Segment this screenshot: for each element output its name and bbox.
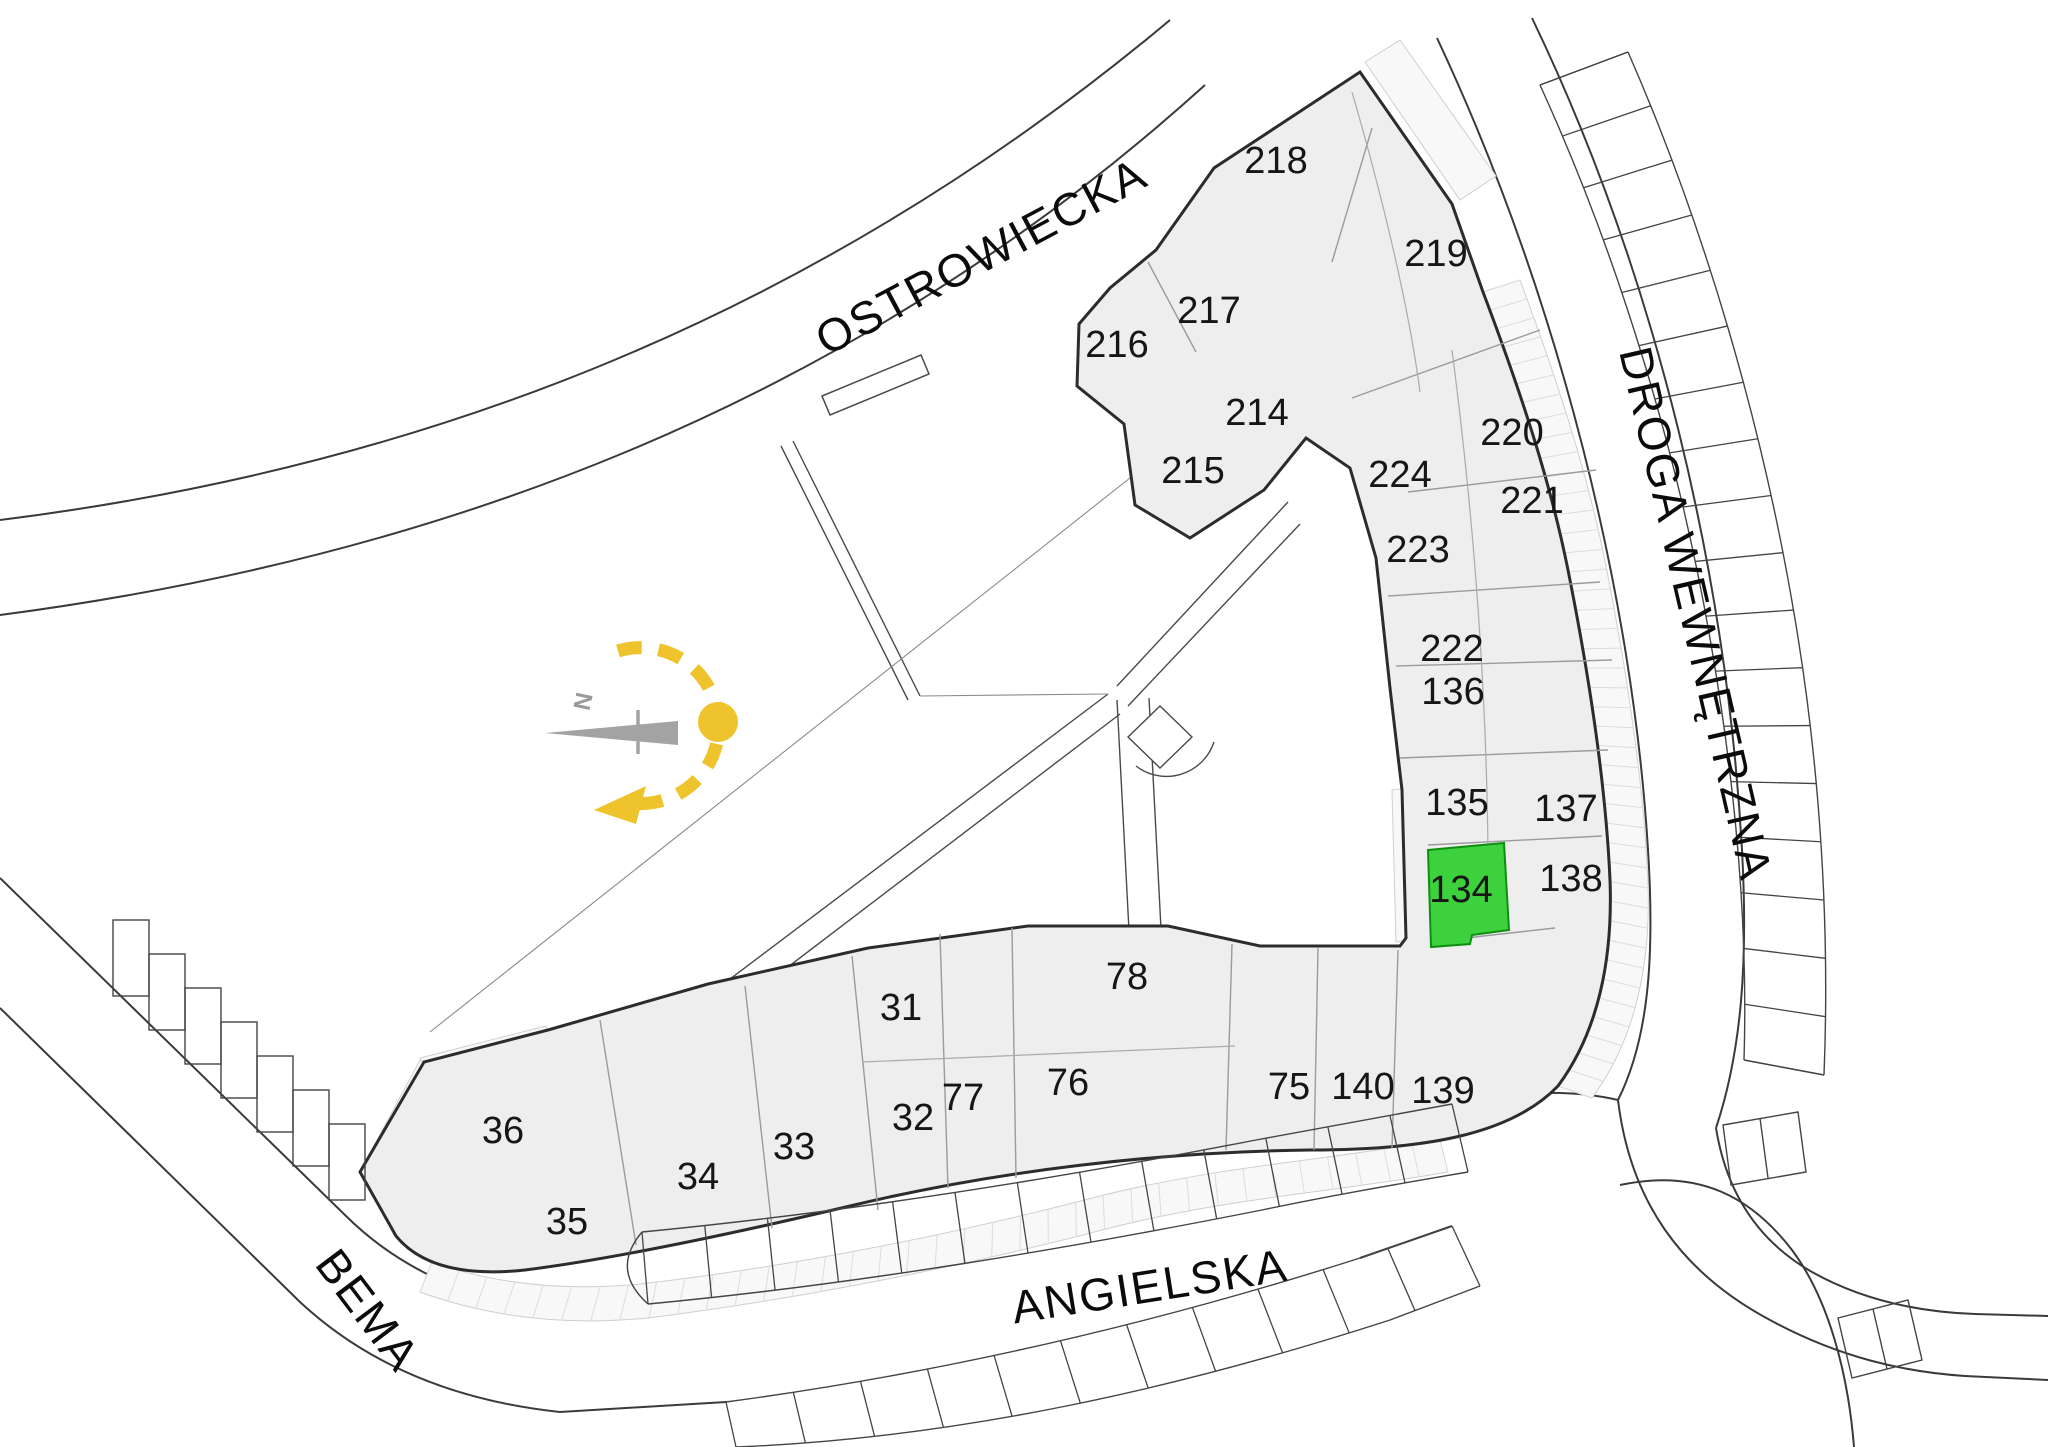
parking-stall <box>221 1022 257 1098</box>
unit-label-219[interactable]: 219 <box>1404 233 1467 275</box>
unit-label-218[interactable]: 218 <box>1244 140 1307 182</box>
unit-label-222[interactable]: 222 <box>1420 628 1483 670</box>
parking-stall <box>257 1056 293 1132</box>
unit-label-224[interactable]: 224 <box>1368 454 1431 496</box>
unit-label-221[interactable]: 221 <box>1500 480 1563 522</box>
site-plan: N OSTROWIECKA DROGA WEWNĘTRZNA ANGIELSKA… <box>0 0 2048 1447</box>
unit-label-134[interactable]: 134 <box>1429 869 1492 911</box>
unit-label-136[interactable]: 136 <box>1421 671 1484 713</box>
street-label-bema: BEMA <box>306 1239 431 1381</box>
street-bay <box>822 355 929 415</box>
unit-label-138[interactable]: 138 <box>1539 858 1602 900</box>
unit-label-215[interactable]: 215 <box>1161 450 1224 492</box>
street-ostrowiecka <box>0 20 1205 615</box>
road-corner-junction <box>1618 1100 2048 1447</box>
unit-label-75[interactable]: 75 <box>1268 1066 1310 1108</box>
unit-label-33[interactable]: 33 <box>773 1126 815 1168</box>
compass-dot <box>698 702 738 742</box>
unit-label-216[interactable]: 216 <box>1085 324 1148 366</box>
unit-label-31[interactable]: 31 <box>880 987 922 1029</box>
unit-label-139[interactable]: 139 <box>1411 1070 1474 1112</box>
north-arrow-icon <box>545 721 678 745</box>
parking-bema-row <box>113 920 365 1200</box>
compass-arc-arrowhead <box>594 786 646 824</box>
parking-stall <box>329 1124 365 1200</box>
unit-label-137[interactable]: 137 <box>1534 788 1597 830</box>
planter-diamond <box>1128 706 1192 768</box>
unit-label-34[interactable]: 34 <box>677 1156 719 1198</box>
unit-label-217[interactable]: 217 <box>1177 290 1240 332</box>
unit-label-214[interactable]: 214 <box>1225 392 1288 434</box>
unit-label-78[interactable]: 78 <box>1106 956 1148 998</box>
parking-corner-stalls <box>1723 1112 1922 1378</box>
compass: N <box>545 648 738 824</box>
parking-stall <box>185 988 221 1064</box>
parking-stall <box>293 1090 329 1166</box>
compass-north-label: N <box>569 690 599 713</box>
unit-label-220[interactable]: 220 <box>1480 412 1543 454</box>
unit-label-140[interactable]: 140 <box>1331 1066 1394 1108</box>
unit-label-36[interactable]: 36 <box>482 1110 524 1152</box>
unit-label-135[interactable]: 135 <box>1425 782 1488 824</box>
unit-label-223[interactable]: 223 <box>1386 529 1449 571</box>
site-plan-canvas: N OSTROWIECKA DROGA WEWNĘTRZNA ANGIELSKA… <box>0 0 2048 1447</box>
unit-label-35[interactable]: 35 <box>546 1201 588 1243</box>
unit-label-76[interactable]: 76 <box>1047 1062 1089 1104</box>
parking-stall <box>113 920 149 996</box>
unit-label-32[interactable]: 32 <box>892 1097 934 1139</box>
parking-stall <box>149 954 185 1030</box>
unit-label-77[interactable]: 77 <box>942 1077 984 1119</box>
